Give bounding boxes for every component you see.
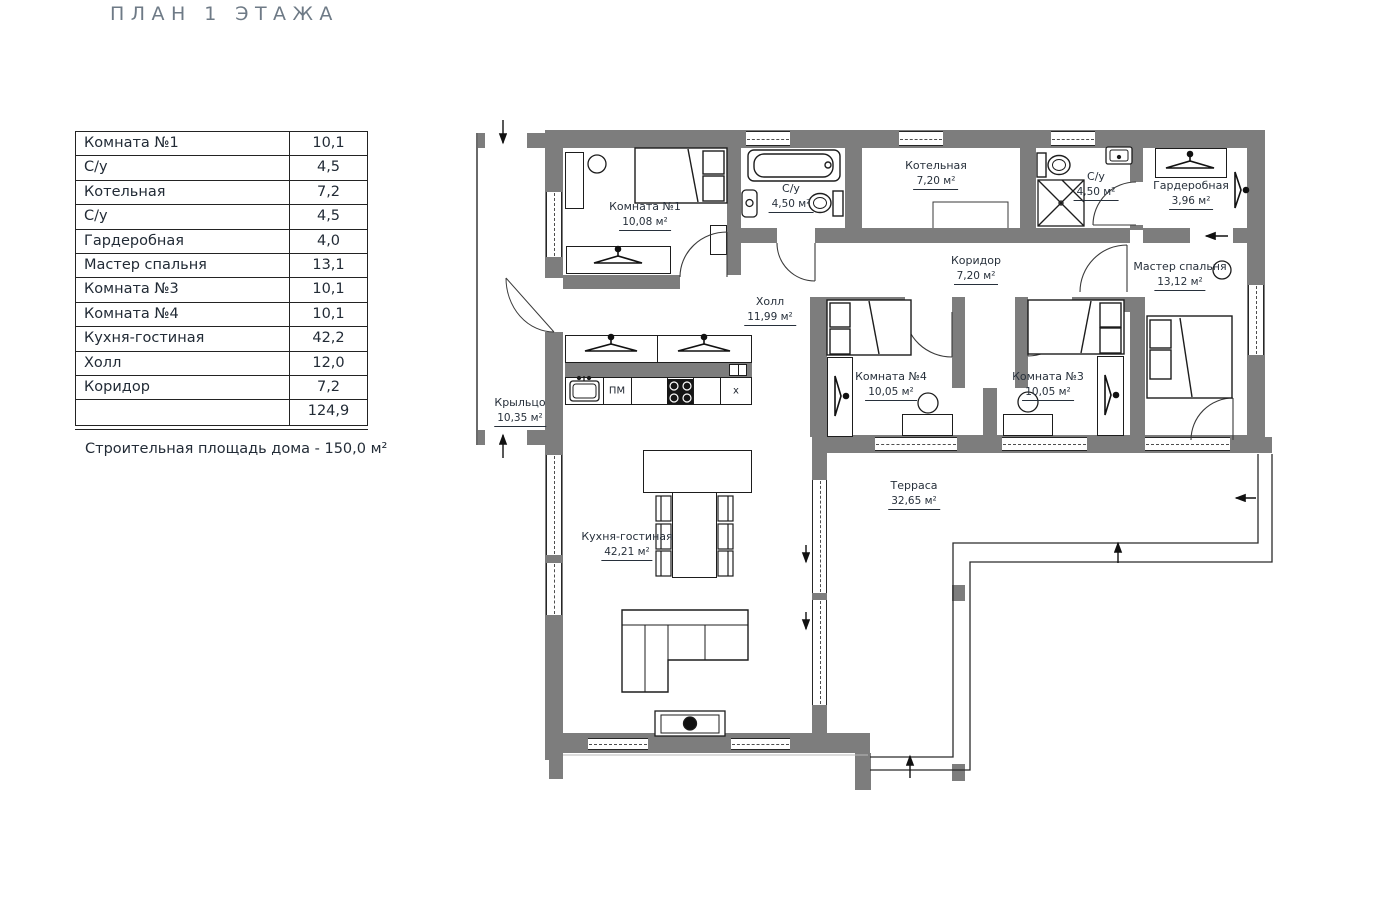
counter-divider — [667, 378, 668, 404]
wall — [1020, 228, 1130, 243]
wall — [727, 148, 741, 275]
dishwasher-label: ПМ — [609, 386, 625, 397]
room-label: Гардеробная3,96 м² — [1153, 180, 1229, 210]
desk — [565, 152, 584, 209]
wall — [563, 275, 680, 289]
table-row: С/у4,5 — [76, 156, 367, 180]
terrace-post — [952, 585, 965, 601]
table-row: Коридор7,2 — [76, 376, 367, 400]
table-row: Холл12,0 — [76, 352, 367, 376]
terrace-door-window — [1145, 437, 1230, 451]
room-label: С/у4,50 м² — [769, 183, 814, 213]
hanger-icon — [585, 152, 1214, 352]
foundation-pier — [549, 753, 563, 779]
toilet — [809, 191, 843, 216]
window — [546, 455, 562, 555]
sink — [1106, 147, 1132, 164]
table-row: Комната №310,1 — [76, 278, 367, 302]
wardrobe-shelf — [1155, 148, 1227, 178]
table-row: Комната №410,1 — [76, 303, 367, 327]
wall — [952, 297, 965, 388]
table-row: Гардеробная4,0 — [76, 230, 367, 254]
door-opening — [1130, 182, 1143, 225]
wall — [983, 388, 997, 437]
boiler-step — [933, 202, 1008, 228]
room-label: Кухня-гостиная42,21 м² — [581, 531, 672, 561]
window — [812, 480, 827, 593]
table-row: Котельная7,2 — [76, 181, 367, 205]
table-underline — [75, 429, 368, 430]
terrace-post — [952, 764, 965, 781]
wall — [862, 228, 1020, 243]
hall-closet — [565, 335, 752, 363]
toilet — [1037, 153, 1070, 177]
window — [731, 738, 790, 750]
window — [899, 131, 943, 146]
bed — [1147, 316, 1232, 398]
window — [546, 192, 562, 257]
door-opening — [1028, 297, 1072, 312]
cabinet-divider — [738, 365, 739, 375]
window — [746, 131, 790, 146]
desk — [1003, 414, 1053, 436]
wall — [1247, 130, 1265, 438]
door-opening — [777, 228, 815, 243]
sink — [742, 190, 757, 217]
door-opening — [545, 278, 563, 332]
room-label: Крыльцо10,35 м² — [494, 397, 546, 427]
window — [1248, 285, 1264, 355]
room-label: Котельная7,20 м² — [905, 160, 967, 190]
desk — [902, 414, 953, 436]
window — [1002, 437, 1087, 451]
table-total-row: 124,9 — [76, 400, 367, 424]
kitchen-island — [643, 450, 752, 493]
floor-plan-sheet: ПЛАН 1 ЭТАЖА Комната №110,1 С/у4,5 Котел… — [0, 0, 1380, 922]
counter-divider — [693, 378, 694, 404]
page-title: ПЛАН 1 ЭТАЖА — [110, 3, 339, 25]
closet-divider — [657, 336, 658, 362]
wardrobe — [827, 357, 853, 437]
window — [875, 437, 957, 451]
table-row: С/у4,5 — [76, 205, 367, 229]
wall — [1020, 130, 1036, 232]
table-row: Кухня-гостиная42,2 — [76, 327, 367, 351]
wall — [1130, 297, 1145, 437]
sofa — [622, 610, 748, 692]
counter-divider — [603, 378, 604, 404]
room-label: Комната №110,08 м² — [609, 201, 681, 231]
wardrobe — [566, 246, 671, 274]
table-row: Комната №110,1 — [76, 132, 367, 156]
room-label: С/у4,50 м² — [1074, 171, 1119, 201]
room-label: Холл11,99 м² — [744, 296, 796, 326]
window — [1051, 131, 1095, 146]
wall — [565, 363, 752, 377]
table-row: Мастер спальня13,1 — [76, 254, 367, 278]
door-opening — [905, 297, 952, 312]
window — [546, 563, 562, 615]
fridge-label: х — [733, 386, 739, 397]
wall — [845, 130, 862, 243]
counter-divider — [631, 378, 632, 404]
room-label: Мастер спальня13,12 м² — [1133, 261, 1226, 291]
window — [588, 738, 648, 750]
room-label: Терраса32,65 м² — [888, 480, 940, 510]
room-label: Комната №410,05 м² — [855, 371, 927, 401]
foundation-pier — [855, 753, 871, 790]
counter-divider — [720, 378, 721, 404]
door-opening — [1190, 228, 1233, 243]
nightstand — [710, 225, 727, 255]
area-table: Комната №110,1 С/у4,5 Котельная7,2 С/у4,… — [75, 131, 368, 426]
porch-opening — [485, 430, 527, 445]
dining-table — [672, 492, 717, 578]
porch-opening — [485, 133, 527, 148]
wardrobe — [1097, 356, 1124, 436]
window — [812, 600, 827, 705]
wall — [810, 297, 827, 437]
kitchen-counter — [565, 377, 752, 405]
door-opening — [965, 297, 1015, 312]
room-label: Коридор7,20 м² — [951, 255, 1001, 285]
bathtub — [748, 150, 840, 181]
bed — [635, 148, 727, 203]
building-area-note: Строительная площадь дома - 150,0 м² — [85, 441, 387, 457]
room-label: Комната №310,05 м² — [1012, 371, 1084, 401]
